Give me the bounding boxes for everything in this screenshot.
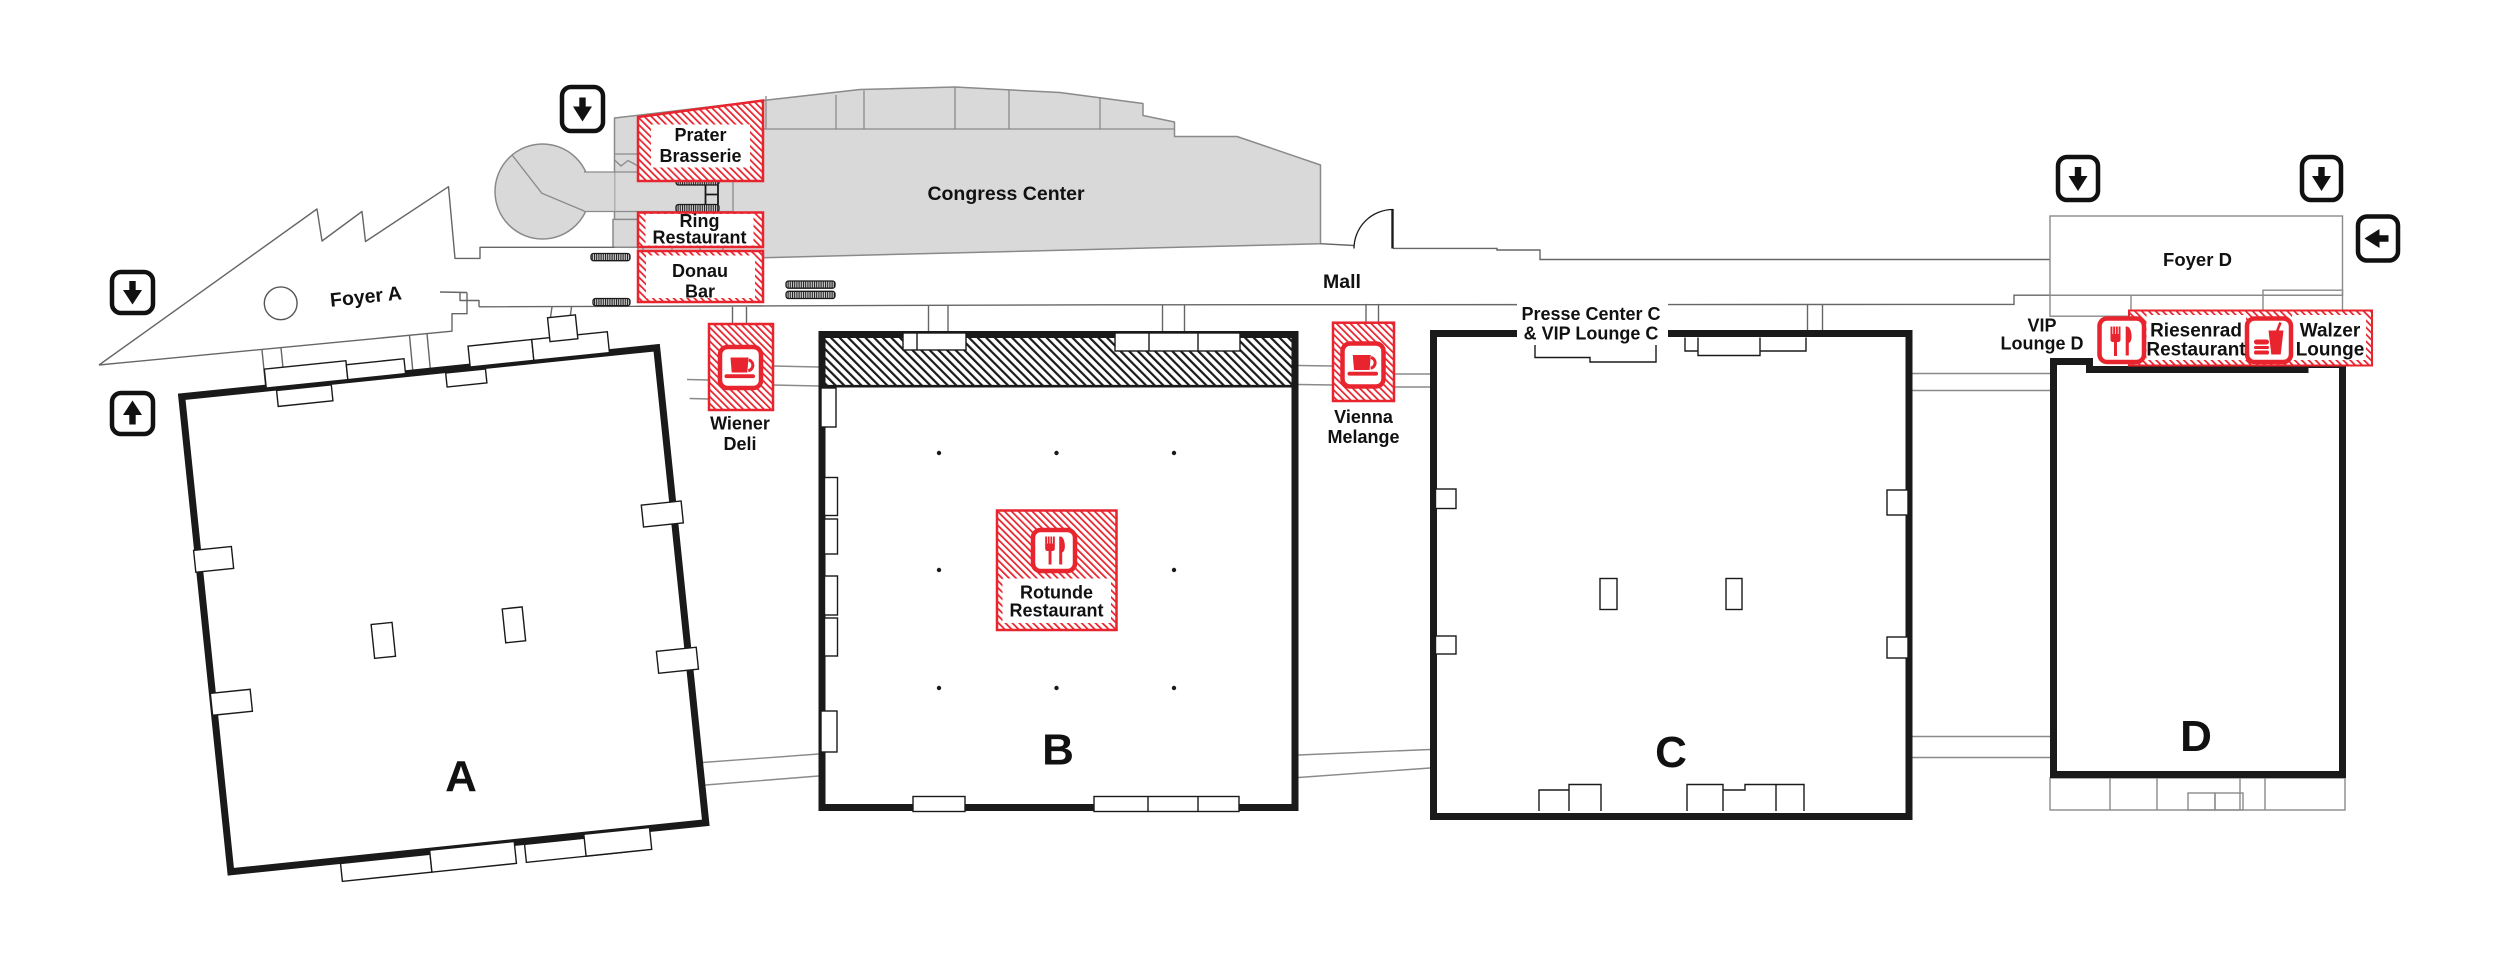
svg-text:Deli: Deli	[723, 434, 756, 454]
svg-text:Restaurant: Restaurant	[1009, 601, 1103, 621]
svg-text:Mall: Mall	[1323, 271, 1361, 293]
svg-text:Walzer: Walzer	[2300, 321, 2361, 342]
svg-text:Congress Center: Congress Center	[927, 183, 1085, 205]
svg-text:Presse Center C: Presse Center C	[1521, 304, 1660, 324]
svg-text:A: A	[445, 752, 477, 801]
svg-text:Restaurant: Restaurant	[652, 228, 746, 248]
svg-text:Bar: Bar	[685, 282, 715, 302]
svg-text:Foyer D: Foyer D	[2163, 249, 2232, 270]
svg-text:Brasserie: Brasserie	[659, 146, 741, 166]
svg-text:Rotunde: Rotunde	[1020, 583, 1093, 603]
svg-text:C: C	[1655, 728, 1687, 777]
svg-text:B: B	[1042, 726, 1074, 775]
svg-text:Riesenrad: Riesenrad	[2150, 321, 2242, 342]
svg-text:Vienna: Vienna	[1334, 407, 1394, 427]
svg-text:Lounge D: Lounge D	[2001, 334, 2084, 354]
svg-text:Prater: Prater	[674, 125, 726, 145]
svg-text:Donau: Donau	[672, 261, 728, 281]
svg-text:VIP: VIP	[2027, 316, 2056, 336]
svg-text:Wiener: Wiener	[710, 414, 770, 434]
svg-text:& VIP Lounge C: & VIP Lounge C	[1524, 324, 1659, 344]
svg-text:Restaurant: Restaurant	[2146, 340, 2246, 361]
svg-text:D: D	[2180, 712, 2212, 761]
svg-text:Melange: Melange	[1327, 427, 1399, 447]
svg-text:Lounge: Lounge	[2296, 340, 2365, 361]
